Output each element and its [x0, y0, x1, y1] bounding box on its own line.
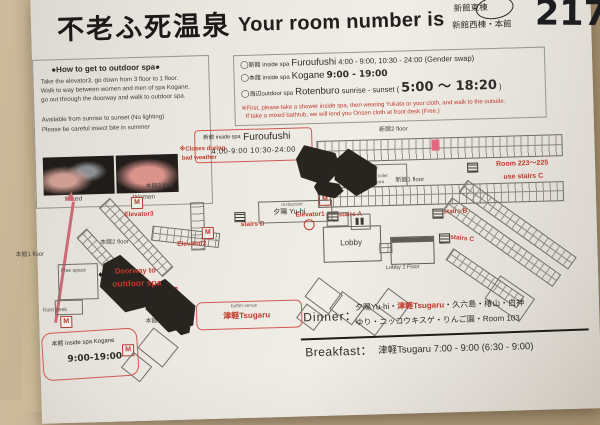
kogane-hours: 9:00-19:00	[67, 351, 122, 365]
stairs-icon	[432, 208, 443, 218]
map-label-honkan1: 本館1 floor	[15, 252, 44, 260]
furoufushi-place: 新館 inside spa	[203, 134, 240, 141]
breakfast-value: 津軽Tsugaru 7:00 - 9:00 (6:30 - 9:00)	[378, 342, 533, 357]
wing-alt-text: 新館西棟・本館	[452, 19, 512, 30]
rooms-223-225-note2: use stairs C	[503, 173, 543, 182]
lobby-box: Lobby	[323, 225, 382, 263]
lobby2-box	[390, 236, 435, 265]
kogane-spa-box: 本館 inside spa Kogane 9:00-19:00	[41, 327, 140, 381]
spa-time-suffix: )	[499, 82, 502, 91]
spa-time-handwritten: 5:00 〜 18:20	[401, 78, 497, 96]
spa-name: Kogane	[292, 70, 325, 82]
lobby2-label: Lobby 2 Floor	[386, 264, 420, 271]
place: 本館 inside spa	[249, 75, 290, 82]
place: 新館 inside spa	[249, 62, 290, 69]
elevator-icon: M	[60, 316, 72, 328]
buffet-venue-box: buffet venue 津軽Tsugaru	[196, 299, 303, 330]
free-space-label: Free space	[61, 267, 93, 274]
doorway-label-line1: Doorway to	[115, 267, 156, 277]
map-label-honkan2: 本館2 floor	[100, 239, 129, 247]
map-label-shinkan1: 新館1 floor	[395, 177, 424, 185]
map-label-elevator2: Elevator2	[177, 240, 206, 248]
photo-mixed-bath	[43, 156, 115, 196]
toilet-box	[350, 213, 370, 230]
stairs-icon	[439, 233, 450, 243]
sheet-content: 不老ふ死温泉 Your room number is 新館東棟 新館西棟・本館 …	[0, 0, 600, 409]
doorway-label-line2: outdoor spa	[112, 278, 161, 289]
spa-time-prefix: sunrise - sunset (	[342, 85, 400, 96]
arrow-left-icon: ⬅	[98, 269, 108, 282]
map-label-elevator3: Elevator3	[124, 211, 153, 219]
map-label-honkan3: 本館3 floor	[145, 183, 174, 191]
spa-time: 4:00 - 9:00, 10:30 - 24:00 (Gender swap)	[338, 54, 474, 67]
lobby2-header-band	[391, 237, 433, 243]
spa-name: Rotenburo	[295, 85, 340, 97]
howto-note-availability: Available from sunrise to sunset (No lig…	[42, 113, 165, 124]
lobby-label: Lobby	[340, 238, 362, 248]
toilet-icon	[356, 218, 359, 225]
restaurant-name: 夕陽 Yu-hi	[273, 208, 305, 217]
elevator-icon: M	[131, 197, 143, 209]
front-desk-label: front desk	[43, 307, 67, 314]
buffet-caption: buffet venue	[231, 304, 257, 310]
furoufushi-hours: 4:00-9:00 10:30-24:00	[212, 146, 297, 157]
spa-hours-box: ◯新館 inside spa Furoufushi 4:00 - 9:00, 1…	[233, 47, 547, 127]
restaurant-box: restaurant 夕陽 Yu-hi	[258, 200, 333, 224]
dinner-venue-highlight: 津軽Tsugaru	[397, 300, 444, 310]
dinner-venues-pre: 夕陽Yu-hi・	[355, 302, 397, 312]
spa-name: Furoufushi	[291, 56, 336, 68]
howto-body-line: go out through the doorway and walk to o…	[41, 93, 186, 104]
map-label-stairs-c: stairs C	[450, 234, 475, 244]
room-number-value: 217	[535, 0, 600, 34]
room-number-label: Your room number is	[238, 8, 445, 37]
furoufushi-name: Furoufushi	[243, 131, 291, 144]
onsen-title: 不老ふ死温泉	[57, 10, 232, 46]
spa-time-handwritten: 9:00 - 19:00	[326, 69, 387, 81]
furoufushi-spa-box: 新館 inside spa Furoufushi 4:00-9:00 10:30…	[194, 127, 313, 163]
meals-divider	[301, 328, 589, 340]
buffet-name: 津軽Tsugaru	[223, 310, 270, 320]
rooms-223-225-note: Room 223〜225	[496, 160, 548, 169]
map-marker-circle	[304, 219, 315, 230]
map-label-shinkan2: 新館2 floor	[379, 126, 408, 134]
breakfast-label: Breakfast：	[305, 344, 373, 360]
info-sheet: 不老ふ死温泉 Your room number is 新館東棟 新館西棟・本館 …	[30, 0, 600, 424]
place: 海辺outdoor spa	[249, 91, 293, 98]
dinner-label: Dinner：	[303, 310, 358, 325]
highlighted-room-217	[431, 140, 439, 151]
howto-note-insects: Please be careful insect bite in summer	[42, 124, 150, 134]
kogane-title: 本館 inside spa Kogane	[51, 338, 114, 349]
stairs-icon	[467, 162, 478, 172]
route-arrow-head-icon	[65, 191, 76, 201]
elevator-icon: M	[202, 227, 214, 239]
howto-title: ●How to get to outdoor spa●	[51, 62, 160, 74]
toilet-icon	[361, 218, 364, 225]
map-small-room	[326, 212, 348, 227]
hours-line-furoufushi: ◯新館 inside spa Furoufushi 4:00 - 9:00, 1…	[240, 54, 474, 71]
